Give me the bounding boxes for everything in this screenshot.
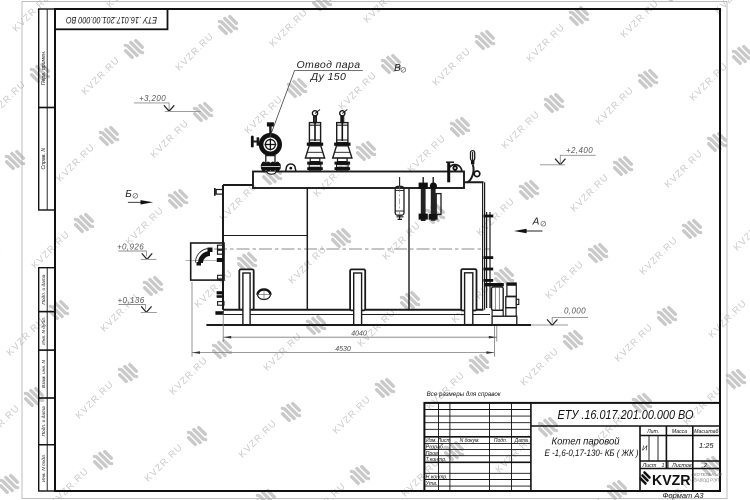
svg-text:Формат А3: Формат А3 bbox=[662, 491, 704, 500]
svg-text:КОТЕЛЬНЫЙ: КОТЕЛЬНЫЙ bbox=[694, 472, 722, 477]
svg-text:KVZR.RU: KVZR.RU bbox=[525, 22, 568, 65]
svg-text:KVZR.RU: KVZR.RU bbox=[732, 211, 750, 254]
svg-text:+0,136: +0,136 bbox=[117, 296, 144, 305]
svg-text:Взам. инв. N: Взам. инв. N bbox=[41, 360, 47, 388]
svg-text:KVZR.RU: KVZR.RU bbox=[124, 205, 167, 248]
svg-text:KVZR.RU: KVZR.RU bbox=[268, 7, 311, 50]
svg-text:KVZR.RU: KVZR.RU bbox=[613, 322, 656, 365]
svg-text:Инв. N подл.: Инв. N подл. bbox=[41, 454, 47, 482]
svg-text:Лист: Лист bbox=[642, 463, 657, 469]
svg-text:Н.контр.: Н.контр. bbox=[426, 475, 448, 481]
svg-text:Изм.: Изм. bbox=[426, 438, 437, 444]
svg-text:KVZR.RU: KVZR.RU bbox=[362, 0, 405, 25]
svg-text:KVZR.RU: KVZR.RU bbox=[563, 496, 606, 500]
svg-text:KVZR.RU: KVZR.RU bbox=[519, 346, 562, 389]
svg-text:KVZR.RU: KVZR.RU bbox=[663, 148, 706, 191]
svg-text:KVZR.RU: KVZR.RU bbox=[0, 403, 22, 446]
svg-text:Справ. N: Справ. N bbox=[41, 148, 47, 170]
svg-text:KVZR.RU: KVZR.RU bbox=[475, 196, 518, 239]
svg-text:1: 1 bbox=[662, 463, 665, 469]
svg-text:Т.контр.: Т.контр. bbox=[426, 457, 447, 463]
svg-text:KVZR.RU: KVZR.RU bbox=[638, 235, 681, 278]
svg-text:+0,926: +0,926 bbox=[117, 243, 144, 252]
svg-text:KVZR.RU: KVZR.RU bbox=[237, 418, 280, 461]
svg-text:KVZR.RU: KVZR.RU bbox=[74, 379, 117, 422]
svg-text:Лит.: Лит. bbox=[646, 429, 659, 435]
svg-text:Отвод пара: Отвод пара bbox=[296, 59, 360, 71]
svg-text:KVZR.RU: KVZR.RU bbox=[0, 166, 3, 209]
svg-text:KVZR.RU: KVZR.RU bbox=[149, 118, 192, 161]
svg-text:Перв. примен.: Перв. примен. bbox=[41, 51, 47, 85]
svg-text:+2,400: +2,400 bbox=[566, 146, 593, 155]
svg-text:Листов: Листов bbox=[671, 463, 692, 469]
svg-text:KVZR.RU: KVZR.RU bbox=[381, 220, 424, 263]
svg-text:KVZR: KVZR bbox=[652, 472, 691, 489]
svg-text:KVZR.RU: KVZR.RU bbox=[688, 61, 731, 104]
svg-text:Все размеры для справок: Все размеры для справок bbox=[427, 391, 502, 398]
svg-text:4530: 4530 bbox=[335, 346, 351, 353]
svg-text:Ду 150: Ду 150 bbox=[310, 71, 347, 83]
svg-text:KVZR.RU: KVZR.RU bbox=[55, 142, 98, 185]
svg-text:KVZR.RU: KVZR.RU bbox=[143, 442, 186, 485]
svg-text:Б: Б bbox=[125, 189, 132, 200]
svg-text:Подп. и дата: Подп. и дата bbox=[41, 274, 47, 304]
svg-text:ЕТУ .16.017.201.00.000 ВО: ЕТУ .16.017.201.00.000 ВО bbox=[66, 15, 157, 25]
svg-text:В: В bbox=[394, 63, 401, 74]
svg-text:KVZR.RU: KVZR.RU bbox=[594, 85, 637, 128]
svg-text:KVZR.RU: KVZR.RU bbox=[80, 55, 123, 98]
svg-text:Масштаб: Масштаб bbox=[694, 429, 719, 435]
svg-text:Масса: Масса bbox=[672, 429, 687, 435]
svg-text:Лист: Лист bbox=[437, 438, 451, 444]
svg-text:И: И bbox=[642, 443, 648, 452]
svg-text:KVZR.RU: KVZR.RU bbox=[243, 94, 286, 137]
svg-text:Утв.: Утв. bbox=[426, 481, 438, 487]
svg-text:2: 2 bbox=[703, 463, 707, 469]
svg-text:KVZR.RU: KVZR.RU bbox=[30, 229, 73, 272]
svg-text:N докум.: N докум. bbox=[460, 438, 480, 444]
svg-text:Е -1,6-0,17-130- КБ ( ЖК ): Е -1,6-0,17-130- КБ ( ЖК ) bbox=[545, 448, 639, 459]
svg-text:ЗАВОД РЭП: ЗАВОД РЭП bbox=[694, 477, 720, 482]
svg-text:Пров.: Пров. bbox=[426, 451, 440, 457]
svg-text:KVZR.RU: KVZR.RU bbox=[569, 172, 612, 215]
svg-text:А: А bbox=[532, 217, 540, 228]
svg-text:Разраб.: Разраб. bbox=[426, 445, 445, 451]
svg-text:0,000: 0,000 bbox=[564, 307, 586, 316]
svg-text:KVZR.RU: KVZR.RU bbox=[193, 268, 236, 311]
svg-text:KVZR.RU: KVZR.RU bbox=[168, 355, 211, 398]
svg-text:1:25: 1:25 bbox=[699, 441, 714, 450]
svg-text:Подп. и дата: Подп. и дата bbox=[41, 406, 47, 436]
svg-text:4040: 4040 bbox=[351, 330, 367, 337]
svg-text:KVZR.RU: KVZR.RU bbox=[619, 0, 662, 40]
svg-text:Инв. N дубл.: Инв. N дубл. bbox=[41, 317, 47, 345]
svg-text:Подп.: Подп. bbox=[494, 438, 507, 444]
svg-text:KVZR.RU: KVZR.RU bbox=[500, 109, 543, 152]
svg-text:KVZR.RU: KVZR.RU bbox=[0, 79, 28, 122]
svg-text:KVZR.RU: KVZR.RU bbox=[331, 394, 374, 437]
svg-text:KVZR.RU: KVZR.RU bbox=[431, 46, 474, 89]
svg-text:KVZR.RU: KVZR.RU bbox=[707, 298, 750, 341]
svg-text:KVZR.RU: KVZR.RU bbox=[406, 133, 449, 176]
svg-text:+3,200: +3,200 bbox=[139, 94, 166, 103]
svg-text:Дата: Дата bbox=[514, 438, 528, 444]
svg-text:Котел паровой: Котел паровой bbox=[552, 436, 620, 448]
svg-text:KVZR.RU: KVZR.RU bbox=[544, 259, 587, 302]
svg-text:ЕТУ .16.017.201.00.000 ВО: ЕТУ .16.017.201.00.000 ВО bbox=[558, 407, 694, 422]
svg-text:KVZR.RU: KVZR.RU bbox=[174, 31, 217, 74]
